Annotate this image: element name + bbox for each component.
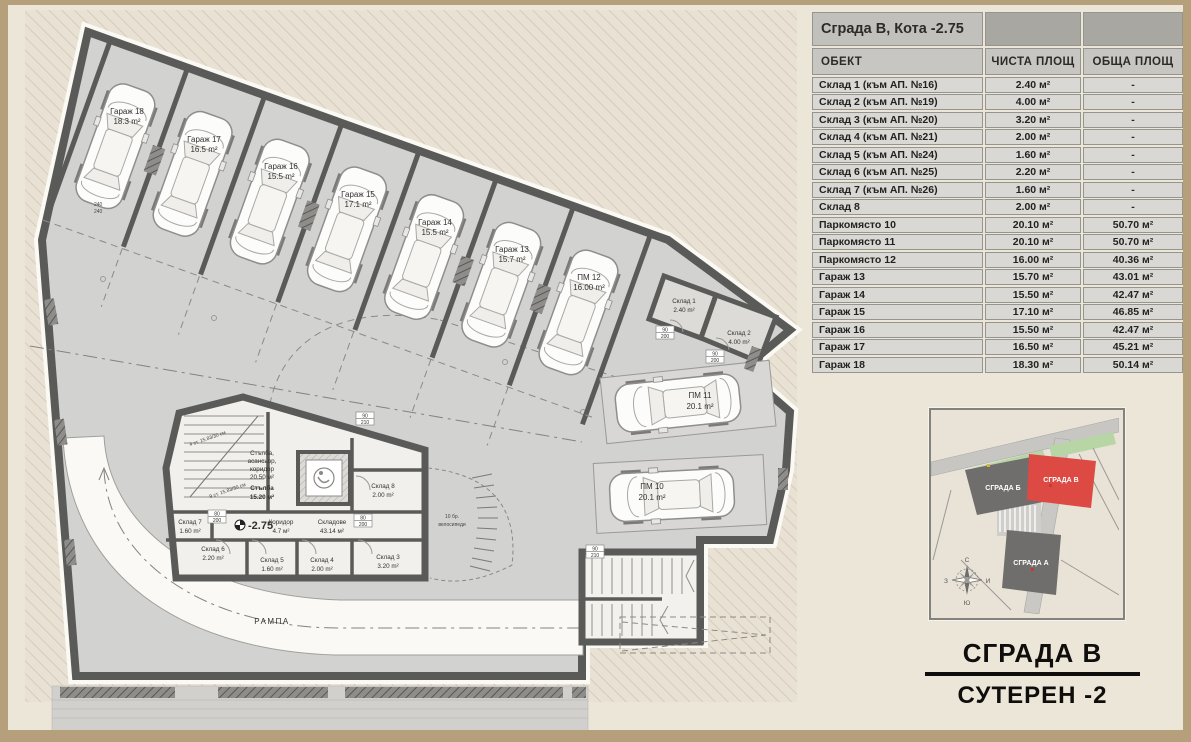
storage-label: Склад 4: [310, 557, 334, 564]
building-a-label: СГРАДА А: [1013, 560, 1048, 567]
ramp-label: РАМПА: [254, 617, 289, 626]
storage-area: 2.40 m²: [673, 307, 694, 314]
object-cell: Паркомясто 12: [812, 252, 983, 268]
net-cell: 16.00 м²: [985, 252, 1081, 268]
gross-cell: -: [1083, 94, 1183, 110]
parking-area: 20.1 m²: [638, 493, 665, 502]
storages-area: 43.14 м²: [320, 528, 344, 535]
object-cell: Склад 4 (към АП. №21): [812, 129, 983, 145]
table-row: Гараж 1818.30 м²50.14 м²: [812, 357, 1183, 373]
building-b-label: СГРАДА Б: [985, 485, 1020, 492]
net-cell: 15.70 м²: [985, 269, 1081, 285]
object-cell: Склад 8: [812, 199, 983, 215]
gross-cell: -: [1083, 164, 1183, 180]
storage-area: 1.60 m²: [261, 566, 282, 573]
table-title-row: Сграда В, Кота -2.75: [812, 12, 1183, 46]
object-cell: Склад 7 (към АП. №26): [812, 182, 983, 198]
bottom-band: [52, 686, 588, 732]
net-cell: 17.10 м²: [985, 304, 1081, 320]
net-cell: 2.00 м²: [985, 199, 1081, 215]
net-cell: 15.50 м²: [985, 322, 1081, 338]
door-mark: 200: [213, 518, 222, 524]
table-row: Паркомясто 1020.10 м²50.70 м²: [812, 217, 1183, 233]
object-cell: Гараж 16: [812, 322, 983, 338]
object-cell: Склад 6 (към АП. №25): [812, 164, 983, 180]
object-cell: Гараж 15: [812, 304, 983, 320]
storage-label: Склад 3: [376, 554, 400, 561]
object-cell: Склад 1 (към АП. №16): [812, 77, 983, 93]
parking-label: ПМ 11: [689, 391, 712, 400]
garage-area: 16.00 m²: [573, 283, 605, 292]
garage-label: Гараж 15: [341, 190, 375, 199]
gross-cell: 42.47 м²: [1083, 287, 1183, 303]
garage-area: 15.5 m²: [267, 172, 294, 181]
net-cell: 20.10 м²: [985, 217, 1081, 233]
net-cell: 16.50 м²: [985, 339, 1081, 355]
stair-label: Стълба: [250, 484, 274, 492]
garage-area: 15.5 m²: [421, 228, 448, 237]
level-mark: [235, 520, 245, 530]
object-cell: Склад 5 (към АП. №24): [812, 147, 983, 163]
storage-label: Склад 7: [178, 519, 202, 526]
storage-label: Склад 6: [201, 546, 225, 553]
table-row: Склад 7 (към АП. №26)1.60 м²-: [812, 182, 1183, 198]
door-mark: 90: [712, 351, 718, 357]
object-cell: Склад 2 (към АП. №19): [812, 94, 983, 110]
storage-area: 2.20 m²: [202, 555, 223, 562]
garage-label: ПМ 12: [577, 273, 601, 282]
building-title: СГРАДА В: [925, 638, 1140, 669]
level-title: СУТЕРЕН -2: [925, 682, 1140, 710]
site-plan-inset: СГРАДА Б СГРАДА В СГРАДА А С И Ю З: [929, 408, 1125, 620]
compass-e: И: [986, 578, 991, 585]
gross-cell: 50.70 м²: [1083, 234, 1183, 250]
gross-cell: 45.21 м²: [1083, 339, 1183, 355]
gross-cell: -: [1083, 77, 1183, 93]
storage-area: 1.60 m²: [179, 528, 200, 535]
door-mark: 90: [592, 546, 598, 552]
core-label: Стълба,: [250, 449, 274, 457]
title-divider: [925, 672, 1140, 676]
table-header-row: ОБЕКТ ЧИСТА ПЛОЩ ОБЩА ПЛОЩ: [812, 48, 1183, 75]
gross-cell: 43.01 м²: [1083, 269, 1183, 285]
bikes-label: велосипеди: [438, 522, 466, 528]
gross-cell: -: [1083, 182, 1183, 198]
object-cell: Гараж 13: [812, 269, 983, 285]
storage-area: 2.00 m²: [372, 492, 393, 499]
col-object: ОБЕКТ: [812, 48, 983, 75]
storage-area: 2.00 m²: [311, 566, 332, 573]
table-row: Склад 2 (към АП. №19)4.00 м²-: [812, 94, 1183, 110]
areas-table: Сграда В, Кота -2.75 ОБЕКТ ЧИСТА ПЛОЩ ОБ…: [812, 12, 1183, 374]
storage-label: Склад 5: [260, 557, 284, 564]
object-cell: Гараж 17: [812, 339, 983, 355]
level-value: -2.75: [248, 520, 273, 532]
elevator: [298, 452, 350, 504]
storage-label: Склад 8: [371, 483, 395, 490]
gross-cell: -: [1083, 147, 1183, 163]
garage-label: Гараж 18: [110, 107, 144, 116]
parking-label: ПМ 10: [640, 482, 664, 491]
table-row: Гараж 1315.70 м²43.01 м²: [812, 269, 1183, 285]
table-row: Склад 1 (към АП. №16)2.40 м²-: [812, 77, 1183, 93]
table-title: Сграда В, Кота -2.75: [812, 12, 983, 46]
garage-area: 16.5 m²: [190, 145, 217, 154]
compass-s: Ю: [964, 600, 971, 607]
table-title-spacer: [1083, 12, 1183, 46]
door-mark: 80: [360, 515, 366, 521]
garage-area: 15.7 m²: [498, 255, 525, 264]
gross-cell: 50.70 м²: [1083, 217, 1183, 233]
stair-area: 15.20 м²: [250, 494, 274, 501]
object-cell: Склад 3 (към АП. №20): [812, 112, 983, 128]
core-label: асансьор,: [248, 458, 277, 465]
net-cell: 2.00 м²: [985, 129, 1081, 145]
dim-240: 240: [94, 202, 103, 208]
col-net-area: ЧИСТА ПЛОЩ: [985, 48, 1081, 75]
door-mark: 210: [591, 553, 600, 559]
gross-cell: 46.85 м²: [1083, 304, 1183, 320]
accessibility-icon: [314, 468, 334, 488]
net-cell: 2.40 м²: [985, 77, 1081, 93]
object-cell: Гараж 14: [812, 287, 983, 303]
door-mark: 90: [662, 327, 668, 333]
table-row: Склад 3 (към АП. №20)3.20 м²-: [812, 112, 1183, 128]
garage-label: Гараж 17: [187, 135, 221, 144]
net-cell: 20.10 м²: [985, 234, 1081, 250]
net-cell: 15.50 м²: [985, 287, 1081, 303]
gross-cell: -: [1083, 129, 1183, 145]
gross-cell: -: [1083, 112, 1183, 128]
table-row: Склад 5 (към АП. №24)1.60 м²-: [812, 147, 1183, 163]
table-row: Паркомясто 1120.10 м²50.70 м²: [812, 234, 1183, 250]
table-row: Склад 4 (към АП. №21)2.00 м²-: [812, 129, 1183, 145]
table-row: Гараж 1716.50 м²45.21 м²: [812, 339, 1183, 355]
net-cell: 1.60 м²: [985, 147, 1081, 163]
door-mark: 200: [661, 334, 670, 340]
storage-label: Склад 1: [672, 298, 696, 305]
core-label: коридор: [250, 466, 275, 473]
net-cell: 3.20 м²: [985, 112, 1081, 128]
object-cell: Гараж 18: [812, 357, 983, 373]
door-mark: 200: [359, 522, 368, 528]
net-cell: 2.20 м²: [985, 164, 1081, 180]
net-cell: 4.00 м²: [985, 94, 1081, 110]
object-cell: Паркомясто 10: [812, 217, 983, 233]
table-row: Гараж 1517.10 м²46.85 м²: [812, 304, 1183, 320]
garage-label: Гараж 13: [495, 245, 529, 254]
gross-cell: 42.47 м²: [1083, 322, 1183, 338]
garage-label: Гараж 14: [418, 218, 452, 227]
table-row: Склад 6 (към АП. №25)2.20 м²-: [812, 164, 1183, 180]
col-gross-area: ОБЩА ПЛОЩ: [1083, 48, 1183, 75]
net-cell: 18.30 м²: [985, 357, 1081, 373]
table-title-spacer: [985, 12, 1081, 46]
door-mark: 90: [362, 413, 368, 419]
title-block: СГРАДА В СУТЕРЕН -2: [925, 638, 1140, 710]
storage-area: 4.00 m²: [728, 339, 749, 346]
exit-stair: [582, 552, 700, 642]
storage-label: Склад 2: [727, 330, 751, 337]
gross-cell: 40.36 м²: [1083, 252, 1183, 268]
dim-240: 240: [94, 209, 103, 215]
object-cell: Паркомясто 11: [812, 234, 983, 250]
gross-cell: -: [1083, 199, 1183, 215]
core-area: 20.50 м²: [250, 474, 274, 481]
building-v-label: СГРАДА В: [1043, 477, 1078, 484]
storages-label: Складове: [318, 519, 347, 526]
bikes-label: 10 бр.: [445, 514, 459, 520]
door-mark: 200: [711, 358, 720, 364]
compass-w: З: [944, 578, 948, 585]
door-mark: 80: [214, 511, 220, 517]
parking-area: 20.1 m²: [686, 402, 713, 411]
gross-cell: 50.14 м²: [1083, 357, 1183, 373]
storage-area: 3.20 m²: [377, 563, 398, 570]
garage-area: 17.1 m²: [344, 200, 371, 209]
corridor-area: 4.7 м²: [273, 528, 290, 535]
table-row: Паркомясто 1216.00 м²40.36 м²: [812, 252, 1183, 268]
door-mark: 210: [361, 420, 370, 426]
table-row: Склад 82.00 м²-: [812, 199, 1183, 215]
net-cell: 1.60 м²: [985, 182, 1081, 198]
garage-area: 18.3 m²: [113, 117, 140, 126]
table-body: Склад 1 (към АП. №16)2.40 м²- Склад 2 (к…: [812, 77, 1183, 373]
table-row: Гараж 1615.50 м²42.47 м²: [812, 322, 1183, 338]
compass-n: С: [965, 557, 970, 564]
garage-label: Гараж 16: [264, 162, 298, 171]
table-row: Гараж 1415.50 м²42.47 м²: [812, 287, 1183, 303]
